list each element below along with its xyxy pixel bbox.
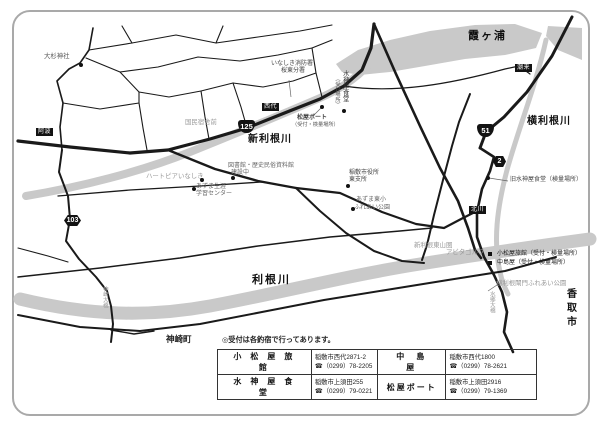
suigo-bridge-label: 水郷大橋 <box>488 291 494 313</box>
nishishiro-tag: 西代 <box>262 103 279 111</box>
shop-phone: ☎（0299）78-2621 <box>449 362 533 371</box>
city-office-label-2: 東支所 <box>349 177 367 183</box>
shop-info: 稲敷市西代1800 ☎（0299）78-2621 <box>446 350 537 375</box>
library-label-1: 図書館・歴史民俗資料館 <box>228 163 294 169</box>
kokumin-label: 国民宿舎前 <box>185 120 217 127</box>
shop-address: 稲敷市西代2871-2 <box>315 353 374 362</box>
route125-road <box>18 24 374 153</box>
kyu-suijinya-label: 旧水神屋食堂（検量場所） <box>510 177 582 183</box>
katori-city-label: 香取市 <box>564 288 575 330</box>
heartpia-label: ハートピアいなしき <box>146 174 204 181</box>
matsuya-boat-note: （受付・検量場所） <box>292 123 339 128</box>
lake-label: 霞ヶ浦 <box>468 31 507 43</box>
shop-address: 稲敷市西代1800 <box>449 353 533 362</box>
kyu-suijinya-marker <box>486 176 490 180</box>
osugi-shrine-label: 大杉神社 <box>44 54 70 61</box>
azuma-school-label-2: ふれあい公園 <box>354 205 390 211</box>
azuma-center-label-2: 学習センター <box>196 191 232 197</box>
kozaki-town-label: 神崎町 <box>166 335 192 344</box>
table-row: 小松屋旅館 稲敷市西代2871-2 ☎（0299）78-2205 中島屋 稲敷市… <box>218 350 537 375</box>
shop-address: 稲敷市上須田255 <box>315 378 374 387</box>
shop-info: 稲敷市上須田2916 ☎（0299）79-1369 <box>446 375 537 400</box>
suijinya-label: 水神屋食堂 <box>341 70 348 102</box>
itako-tag: 潮来 <box>515 64 532 72</box>
aba-tag: 阿波 <box>36 128 53 136</box>
library-marker <box>231 176 235 180</box>
suijinya-marker <box>342 109 346 113</box>
city-office-marker <box>346 184 350 188</box>
heartpia-marker <box>200 178 204 182</box>
tone-label: 利根川 <box>252 275 291 287</box>
komatsuya-label: 小松屋旅館（受付・検量場所） <box>497 251 581 257</box>
golf-label: アビタゴルフ <box>446 250 484 257</box>
suijinya-note: （受付場所） <box>334 76 339 107</box>
shop-info: 稲敷市西代2871-2 ☎（0299）78-2205 <box>311 350 377 375</box>
kozaki-bridge-label: 神崎大橋 <box>101 286 107 308</box>
nakajimaya-marker <box>488 261 492 265</box>
shop-phone: ☎（0299）79-1369 <box>449 387 533 396</box>
city-office-label-1: 稲敷市役所 <box>349 170 379 176</box>
shintone-label: 新利根川 <box>248 135 292 146</box>
azuma-school-marker <box>351 207 355 211</box>
shop-name: 小松屋旅館 <box>218 350 312 375</box>
shop-name: 水神屋食堂 <box>218 375 312 400</box>
fire-station-label-2: 桜東分署 <box>281 68 305 74</box>
kitagawa-tag: 北川 <box>469 206 486 214</box>
fire-station-label-1: いなしき消防署 <box>271 61 313 67</box>
shop-address: 稲敷市上須田2916 <box>449 378 533 387</box>
azuma-school-label-1: あずま東小 <box>356 197 386 203</box>
reception-note: ◎受付は各釣宿で行ってあります。 <box>222 335 335 345</box>
shop-name: 中島屋 <box>378 350 446 375</box>
shop-phone: ☎（0299）78-2205 <box>315 362 374 371</box>
matsuya-boat-label: 松屋ボート <box>297 115 327 121</box>
shop-phone: ☎（0299）79-0221 <box>315 387 374 396</box>
fishing-map: 霞ヶ浦 横利根川 新利根川 利根川 香取市 神崎町 125 51 2 103 阿… <box>0 0 600 423</box>
yokotone-label: 横利根川 <box>527 117 571 128</box>
lock-park-label: 横利根閘門ふれあい公園 <box>496 281 566 288</box>
nakajimaya-label: 中島屋（受付・検量場所） <box>497 260 569 266</box>
shop-name: 松屋ボート <box>378 375 446 400</box>
shop-info: 稲敷市上須田255 ☎（0299）79-0221 <box>311 375 377 400</box>
table-row: 水神屋食堂 稲敷市上須田255 ☎（0299）79-0221 松屋ボート 稲敷市… <box>218 375 537 400</box>
shop-contact-table: 小松屋旅館 稲敷市西代2871-2 ☎（0299）78-2205 中島屋 稲敷市… <box>217 349 537 400</box>
komatsuya-marker <box>488 252 492 256</box>
osugi-shrine-marker <box>79 63 83 67</box>
azuma-center-marker <box>192 187 196 191</box>
kozaki-road-north <box>57 28 93 150</box>
azuma-center-label-1: あずま生涯 <box>196 184 226 190</box>
matsuya-boat-marker <box>320 105 324 109</box>
